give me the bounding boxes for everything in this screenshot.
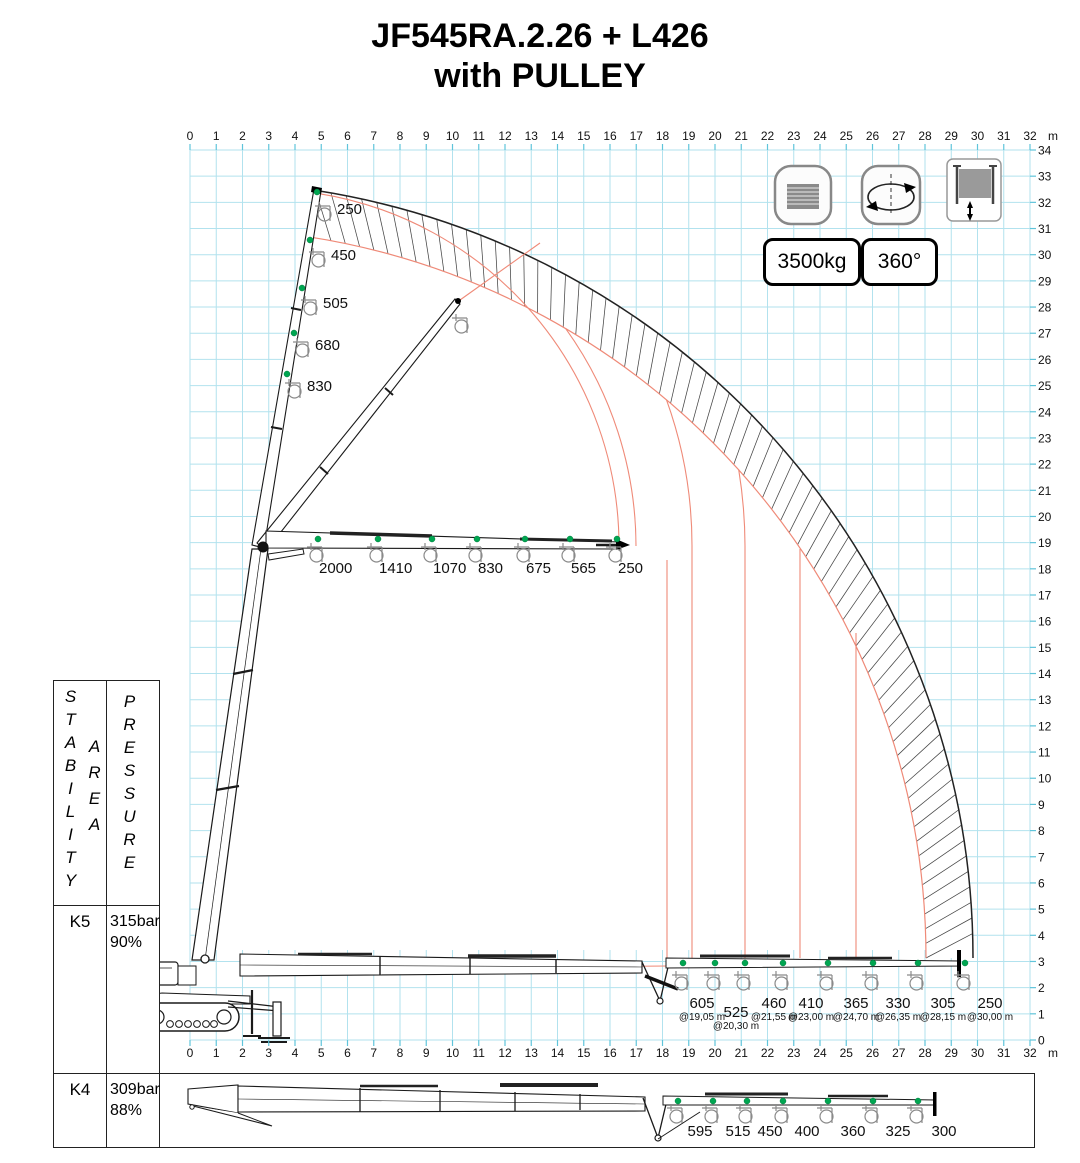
x-axis-label-bottom: 7 bbox=[370, 1046, 377, 1060]
stability-header: STABILITY bbox=[60, 687, 80, 894]
x-axis-label-top: 15 bbox=[577, 129, 591, 143]
x-axis-label-bottom: 11 bbox=[473, 1046, 486, 1060]
section-dot bbox=[474, 536, 480, 542]
x-axis-label-bottom: 28 bbox=[918, 1046, 932, 1060]
y-axis-label: 8 bbox=[1038, 824, 1045, 838]
k4-class-cell: K4 bbox=[53, 1073, 107, 1148]
x-axis-label-top: 22 bbox=[761, 129, 775, 143]
y-axis-label: 0 bbox=[1038, 1034, 1045, 1048]
section-dot bbox=[870, 960, 876, 966]
section-dot bbox=[712, 960, 718, 966]
x-axis-label-top: 9 bbox=[423, 129, 430, 143]
y-axis-label: 7 bbox=[1038, 850, 1045, 864]
section-dot bbox=[284, 371, 290, 377]
x-axis-label-bottom: 29 bbox=[945, 1046, 959, 1060]
load-label: 305 bbox=[930, 995, 955, 1012]
y-axis-label: 30 bbox=[1038, 248, 1052, 262]
x-axis-label-bottom: 3 bbox=[265, 1046, 272, 1060]
y-axis-label: 32 bbox=[1038, 196, 1052, 210]
x-axis-label-top: 21 bbox=[735, 129, 749, 143]
y-axis-label: 31 bbox=[1038, 222, 1052, 236]
x-axis-label-bottom: 6 bbox=[344, 1046, 351, 1060]
x-axis-label-top: 2 bbox=[239, 129, 246, 143]
load-label: 250 bbox=[977, 995, 1002, 1012]
load-label: 525 bbox=[723, 1004, 748, 1021]
load-label: 505 bbox=[323, 295, 348, 312]
section-dot bbox=[291, 330, 297, 336]
x-axis-label-top: 32 bbox=[1023, 129, 1037, 143]
section-dot bbox=[307, 237, 313, 243]
load-label: 680 bbox=[315, 337, 340, 354]
y-axis-label: 11 bbox=[1038, 746, 1051, 760]
load-label: 1410 bbox=[379, 560, 412, 577]
jib-diagonal-tip bbox=[455, 298, 461, 304]
y-axis-label: 2 bbox=[1038, 981, 1045, 995]
x-axis-label-bottom: 9 bbox=[423, 1046, 430, 1060]
load-label: 250 bbox=[618, 560, 643, 577]
x-axis-label-top: 24 bbox=[813, 129, 827, 143]
x-axis-label-top: 30 bbox=[971, 129, 985, 143]
x-axis-label-top: 20 bbox=[708, 129, 722, 143]
y-axis-label: 12 bbox=[1038, 719, 1052, 733]
y-axis-label: 27 bbox=[1038, 327, 1052, 341]
load-distance-label: @28,15 m bbox=[920, 1012, 966, 1023]
x-axis-label-bottom: 22 bbox=[761, 1046, 775, 1060]
load-label: 2000 bbox=[319, 560, 352, 577]
k5-bar: 315bar bbox=[110, 911, 159, 932]
outrigger-leg-right bbox=[273, 1002, 281, 1036]
k5-label: K5 bbox=[54, 906, 106, 932]
x-axis-label-bottom: 15 bbox=[577, 1046, 591, 1060]
x-axis-label-top: 31 bbox=[997, 129, 1011, 143]
load-distance-label: @24,70 m bbox=[833, 1012, 879, 1023]
x-axis-label-bottom: 21 bbox=[735, 1046, 749, 1060]
k5-class-cell: K5 bbox=[53, 905, 107, 1074]
x-axis-label-top: 5 bbox=[318, 129, 325, 143]
k5-pressure-cell: 315bar 90% bbox=[106, 905, 160, 1074]
y-axis-label: 19 bbox=[1038, 536, 1052, 550]
x-axis-label-top: 0 bbox=[187, 129, 194, 143]
x-axis-label-top: 8 bbox=[397, 129, 404, 143]
load-label: 330 bbox=[885, 995, 910, 1012]
section-dot bbox=[614, 536, 620, 542]
y-axis-label: 5 bbox=[1038, 903, 1045, 917]
y-axis-label: 23 bbox=[1038, 431, 1052, 445]
area-header: AREA bbox=[84, 737, 104, 841]
winch-icon bbox=[946, 158, 1002, 222]
y-axis-label: 29 bbox=[1038, 274, 1052, 288]
load-label: 565 bbox=[571, 560, 596, 577]
section-dot bbox=[429, 536, 435, 542]
x-axis-label-top: 7 bbox=[370, 129, 377, 143]
x-axis-label-top: 18 bbox=[656, 129, 670, 143]
crane-load-diagram: 2504505056808302000141010708306755652506… bbox=[0, 0, 1080, 1163]
load-label: 1070 bbox=[433, 560, 466, 577]
y-axis-label: 20 bbox=[1038, 510, 1052, 524]
title-line2: with PULLEY bbox=[0, 56, 1080, 96]
y-axis-label: 6 bbox=[1038, 876, 1045, 890]
section-dot bbox=[915, 960, 921, 966]
x-axis-label-bottom: 17 bbox=[630, 1046, 644, 1060]
x-axis-label-bottom: 4 bbox=[292, 1046, 299, 1060]
section-dot bbox=[314, 189, 320, 195]
x-axis-label-top: 19 bbox=[682, 129, 696, 143]
section-dot bbox=[299, 285, 305, 291]
section-dot bbox=[742, 960, 748, 966]
x-axis-label-top: 23 bbox=[787, 129, 801, 143]
x-axis-label-top: 11 bbox=[473, 129, 486, 143]
x-axis-label-top: 13 bbox=[525, 129, 539, 143]
load-distance-label: @26,35 m bbox=[875, 1012, 921, 1023]
load-label: 450 bbox=[331, 247, 356, 264]
load-label: 365 bbox=[843, 995, 868, 1012]
x-axis-label-top: 6 bbox=[344, 129, 351, 143]
y-axis-label: 14 bbox=[1038, 667, 1052, 681]
x-axis-label-bottom: 31 bbox=[997, 1046, 1011, 1060]
x-axis-label-top: 16 bbox=[603, 129, 617, 143]
y-axis-label: 25 bbox=[1038, 379, 1052, 393]
stabilizer-plates-icon bbox=[773, 164, 833, 226]
load-distance-label: @23,00 m bbox=[788, 1012, 834, 1023]
x-axis-label-bottom: 20 bbox=[708, 1046, 722, 1060]
x-axis-label-bottom: 12 bbox=[498, 1046, 512, 1060]
x-axis-label-bottom: 25 bbox=[840, 1046, 854, 1060]
x-axis-label-top: 17 bbox=[630, 129, 644, 143]
x-axis-label-top: 3 bbox=[265, 129, 272, 143]
k4-label: K4 bbox=[54, 1074, 106, 1100]
x-axis-label-bottom: 13 bbox=[525, 1046, 539, 1060]
section-dot bbox=[680, 960, 686, 966]
load-label: 410 bbox=[798, 995, 823, 1012]
load-distance-label: @30,00 m bbox=[967, 1012, 1013, 1023]
x-axis-label-bottom: 18 bbox=[656, 1046, 670, 1060]
pressure-header: PRESSURE bbox=[119, 692, 139, 876]
section-dot bbox=[315, 536, 321, 542]
load-label: 675 bbox=[526, 560, 551, 577]
x-axis-label-bottom: 19 bbox=[682, 1046, 696, 1060]
k4-strip-box bbox=[53, 1073, 1035, 1148]
x-axis-label-bottom: 10 bbox=[446, 1046, 460, 1060]
y-axis-label: 17 bbox=[1038, 588, 1052, 602]
y-axis-label: 28 bbox=[1038, 301, 1052, 315]
k5-pct: 90% bbox=[110, 932, 159, 953]
x-axis-unit-bottom: m bbox=[1048, 1046, 1058, 1060]
x-axis-label-top: 28 bbox=[918, 129, 932, 143]
section-dot bbox=[567, 536, 573, 542]
x-axis-label-bottom: 32 bbox=[1023, 1046, 1037, 1060]
x-axis-label-bottom: 23 bbox=[787, 1046, 801, 1060]
x-axis-label-bottom: 0 bbox=[187, 1046, 194, 1060]
slewing-rotation-icon bbox=[860, 164, 922, 226]
x-axis-label-top: 27 bbox=[892, 129, 906, 143]
x-axis-label-bottom: 30 bbox=[971, 1046, 985, 1060]
x-axis-label-top: 4 bbox=[292, 129, 299, 143]
y-axis-label: 13 bbox=[1038, 693, 1052, 707]
y-axis-label: 3 bbox=[1038, 955, 1045, 969]
k4-bar: 309bar bbox=[110, 1079, 159, 1100]
y-axis-label: 21 bbox=[1038, 484, 1052, 498]
y-axis-label: 33 bbox=[1038, 170, 1052, 184]
y-axis-label: 18 bbox=[1038, 562, 1052, 576]
x-axis-unit-top: m bbox=[1048, 129, 1058, 143]
x-axis-label-bottom: 16 bbox=[603, 1046, 617, 1060]
y-axis-label: 24 bbox=[1038, 405, 1052, 419]
section-dot bbox=[522, 536, 528, 542]
x-axis-label-top: 26 bbox=[866, 129, 880, 143]
y-axis-label: 4 bbox=[1038, 929, 1045, 943]
section-dot bbox=[780, 960, 786, 966]
k4-pct: 88% bbox=[110, 1100, 159, 1121]
x-axis-label-bottom: 24 bbox=[813, 1046, 827, 1060]
slewing-badge: 360° bbox=[861, 238, 938, 286]
load-label: 460 bbox=[761, 995, 786, 1012]
title-line1: JF545RA.2.26 + L426 bbox=[0, 16, 1080, 56]
x-axis-label-top: 29 bbox=[945, 129, 959, 143]
section-dot bbox=[825, 960, 831, 966]
load-label: 830 bbox=[478, 560, 503, 577]
section-dot bbox=[962, 960, 968, 966]
x-axis-label-bottom: 8 bbox=[397, 1046, 404, 1060]
x-axis-label-bottom: 1 bbox=[213, 1046, 220, 1060]
y-axis-label: 1 bbox=[1038, 1007, 1045, 1021]
x-axis-label-bottom: 2 bbox=[239, 1046, 246, 1060]
y-axis-label: 22 bbox=[1038, 458, 1052, 472]
k4-pressure-cell: 309bar 88% bbox=[106, 1073, 160, 1148]
x-axis-label-top: 1 bbox=[213, 129, 220, 143]
y-axis-label: 26 bbox=[1038, 353, 1052, 367]
x-axis-label-top: 25 bbox=[840, 129, 854, 143]
knuckle-joint bbox=[258, 542, 269, 553]
x-axis-label-bottom: 26 bbox=[866, 1046, 880, 1060]
capacity-badge: 3500kg bbox=[763, 238, 861, 286]
section-dot bbox=[375, 536, 381, 542]
y-axis-label: 16 bbox=[1038, 615, 1052, 629]
y-axis-label: 10 bbox=[1038, 772, 1052, 786]
x-axis-label-bottom: 5 bbox=[318, 1046, 325, 1060]
x-axis-label-top: 10 bbox=[446, 129, 460, 143]
load-label: 830 bbox=[307, 378, 332, 395]
load-label: 250 bbox=[337, 201, 362, 218]
load-label: 605 bbox=[689, 995, 714, 1012]
x-axis-label-top: 12 bbox=[498, 129, 512, 143]
y-axis-label: 15 bbox=[1038, 641, 1052, 655]
y-axis-label: 34 bbox=[1038, 143, 1052, 157]
x-axis-label-bottom: 14 bbox=[551, 1046, 565, 1060]
page-title: JF545RA.2.26 + L426 with PULLEY bbox=[0, 16, 1080, 96]
x-axis-label-bottom: 27 bbox=[892, 1046, 906, 1060]
y-axis-label: 9 bbox=[1038, 798, 1045, 812]
x-axis-label-top: 14 bbox=[551, 129, 565, 143]
